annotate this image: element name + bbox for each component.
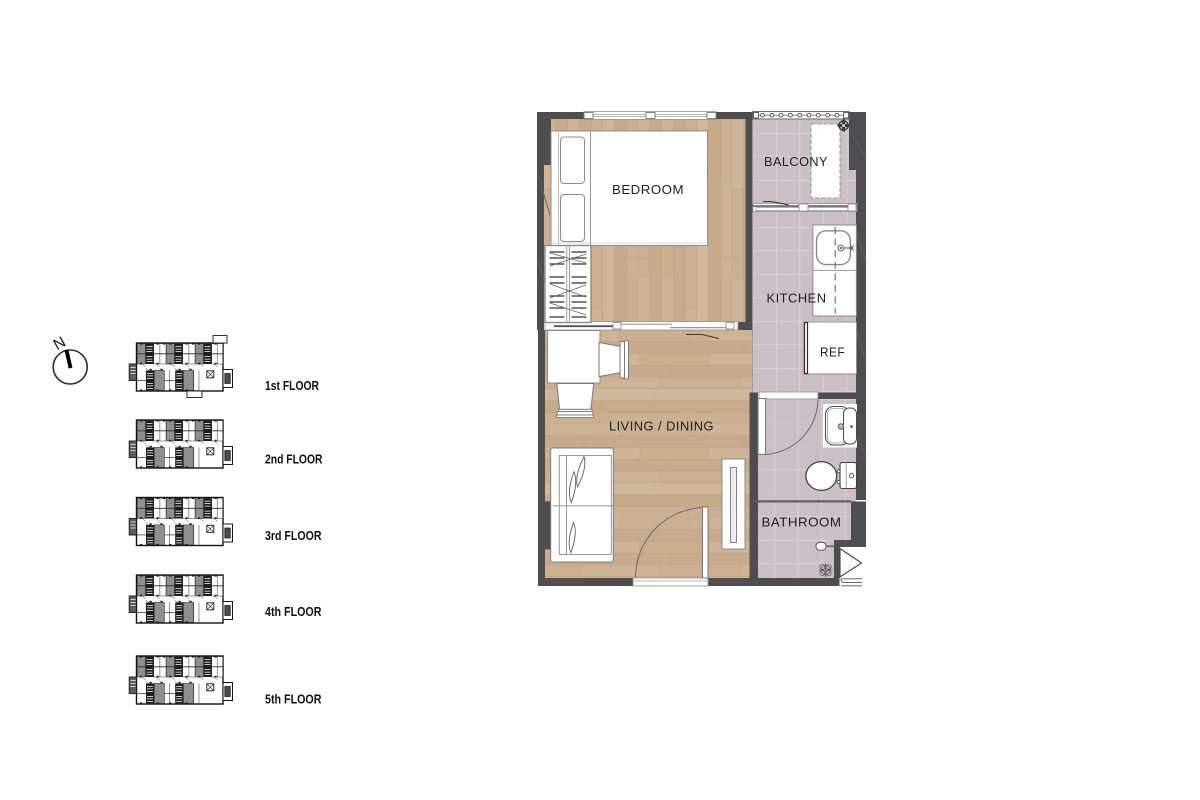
svg-text:1st FLOOR: 1st FLOOR	[265, 378, 319, 393]
svg-text:REF: REF	[820, 345, 845, 360]
svg-text:5th FLOOR: 5th FLOOR	[265, 692, 322, 707]
svg-text:2nd FLOOR: 2nd FLOOR	[265, 452, 323, 467]
svg-text:KITCHEN: KITCHEN	[767, 291, 827, 306]
svg-text:BALCONY: BALCONY	[764, 154, 828, 169]
svg-text:3rd FLOOR: 3rd FLOOR	[265, 528, 322, 543]
svg-text:BEDROOM: BEDROOM	[612, 182, 684, 197]
svg-text:4th FLOOR: 4th FLOOR	[265, 604, 322, 619]
svg-text:LIVING / DINING: LIVING / DINING	[609, 419, 714, 434]
svg-text:BATHROOM: BATHROOM	[762, 515, 842, 530]
